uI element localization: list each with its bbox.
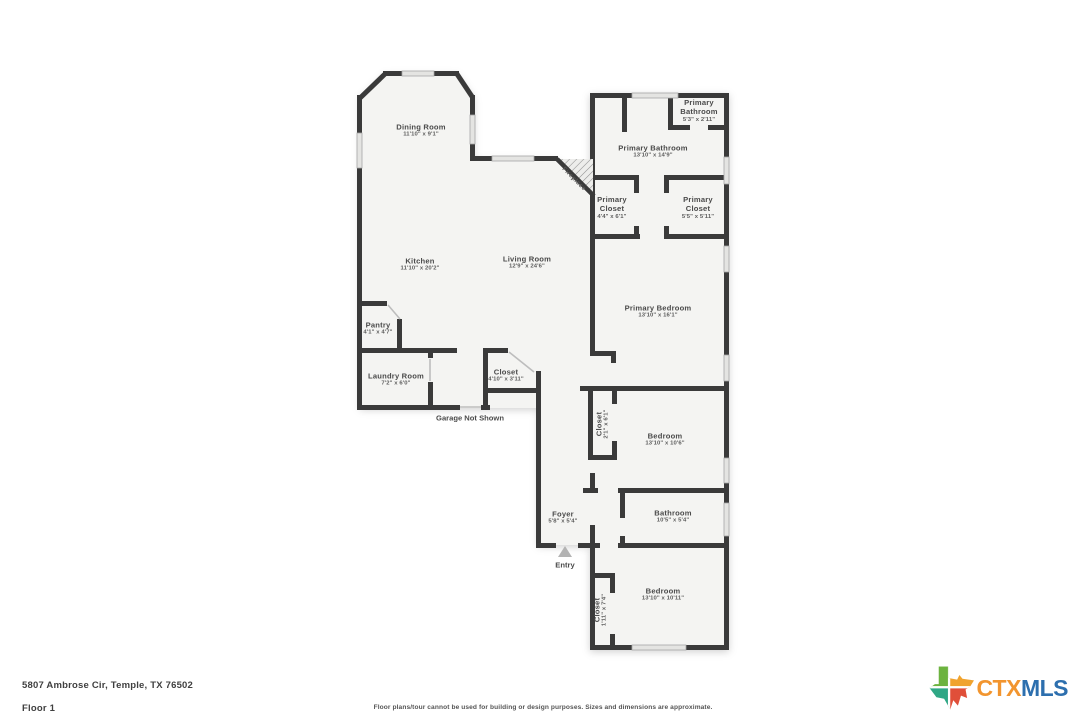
floor-number-label: Floor 1 — [22, 703, 55, 714]
logo-ctx-text: CTX — [976, 675, 1021, 701]
floorplan-drawing — [0, 0, 1086, 724]
entry-label: Entry — [555, 561, 574, 570]
entry-arrow-icon — [558, 546, 572, 557]
ctxmls-logo: CTXMLS — [928, 664, 1068, 712]
logo-wordmark: CTXMLS — [976, 677, 1068, 700]
property-address: 5807 Ambrose Cir, Temple, TX 76502 — [22, 680, 193, 691]
logo-mls-text: MLS — [1021, 675, 1068, 701]
garage-note: Garage Not Shown — [436, 414, 504, 423]
texas-icon — [928, 666, 974, 710]
disclaimer-text: Floor plans/tour cannot be used for buil… — [374, 704, 713, 711]
